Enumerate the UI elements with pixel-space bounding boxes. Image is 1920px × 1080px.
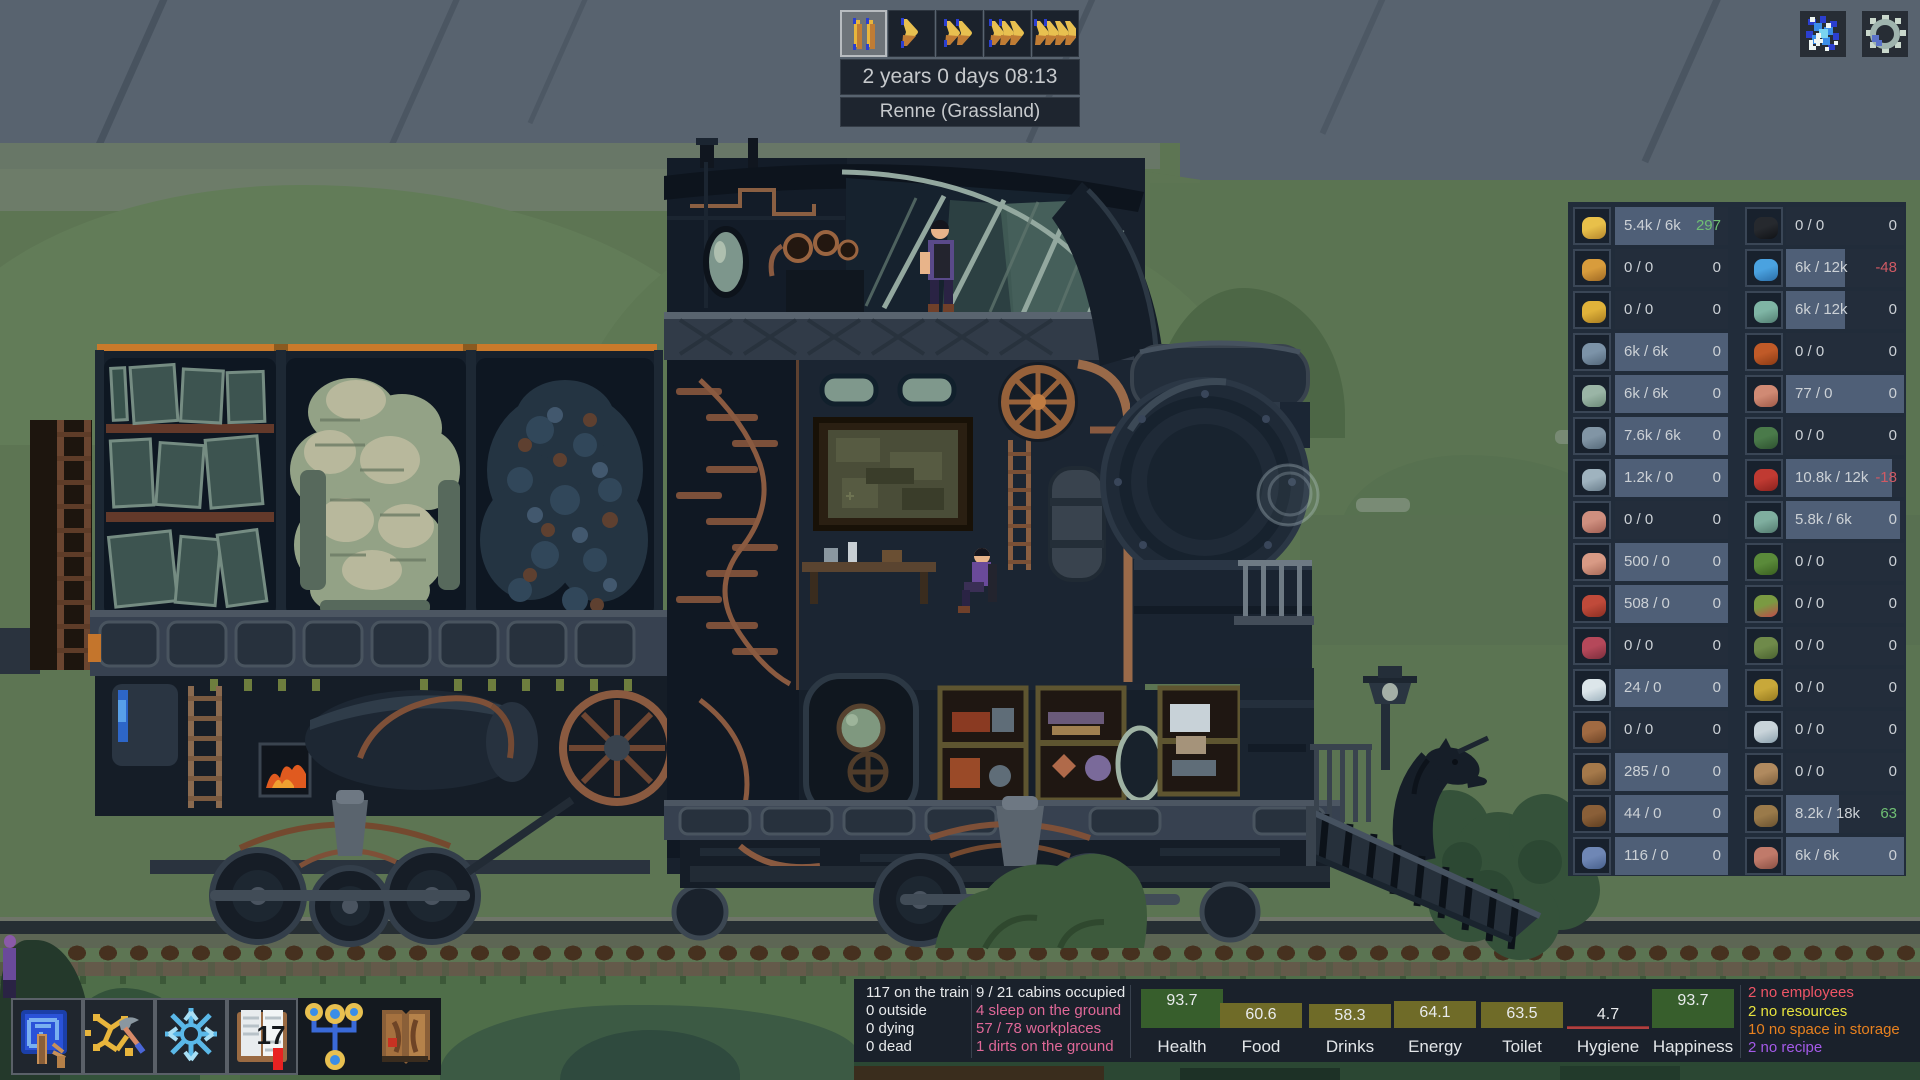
svg-text:17: 17: [257, 1020, 286, 1050]
